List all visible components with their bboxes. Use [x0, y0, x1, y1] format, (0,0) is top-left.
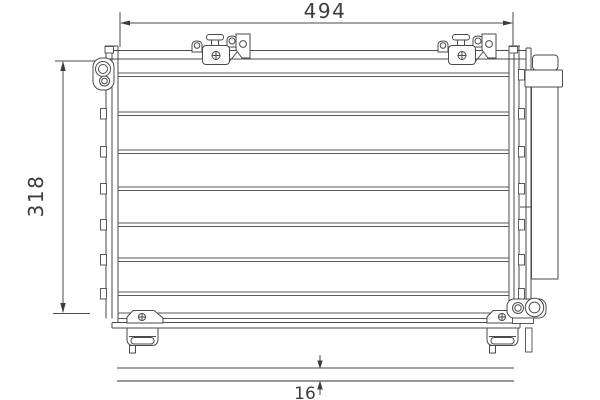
port-small-bore [515, 305, 521, 311]
arrowhead-right-icon [503, 21, 513, 26]
drier-top-cap [533, 55, 559, 70]
bottom-plate [112, 323, 520, 329]
drier-clamp-band [525, 70, 563, 87]
right-side-tank [509, 46, 525, 319]
foot-pin [130, 346, 136, 354]
foot-cushion-inner [491, 338, 514, 345]
arrowhead-up-icon [60, 61, 65, 71]
fitting-top-left [93, 58, 114, 90]
dimension-height-label: 318 [24, 175, 48, 218]
condenser-diagram-svg: 494 318 [0, 0, 600, 400]
top-bracket-right [438, 34, 496, 65]
bracket-plate [482, 34, 496, 58]
side-view [117, 368, 514, 381]
tube-row-separators [118, 73, 509, 296]
dimension-width-label: 494 [304, 0, 347, 23]
dimension-depth-label: 16 [294, 384, 316, 400]
port-large-bore [99, 65, 108, 74]
bracket-pin-cap [453, 35, 470, 41]
condenser-core [118, 46, 509, 323]
arrowhead-left-icon [120, 21, 130, 26]
tank-top-step [509, 47, 518, 54]
fitting-pin [526, 328, 533, 352]
mounting-foot-left [127, 311, 163, 354]
top-bracket-left [192, 34, 250, 65]
receiver-drier [520, 48, 563, 299]
drier-body [532, 87, 559, 279]
foot-pin [490, 346, 496, 354]
technical-drawing-page: 494 318 [0, 0, 600, 400]
dimension-height: 318 [24, 61, 97, 314]
bracket-plate [236, 34, 250, 58]
port-large-bore [529, 302, 540, 313]
port-small-bore [102, 78, 108, 84]
arrowhead-down-icon [60, 303, 65, 313]
tank-top-step [105, 47, 114, 54]
foot-cushion-inner [131, 338, 154, 345]
bracket-pin-cap [207, 35, 224, 41]
dimension-depth: 16 [294, 355, 323, 400]
fitting-step [513, 318, 534, 324]
